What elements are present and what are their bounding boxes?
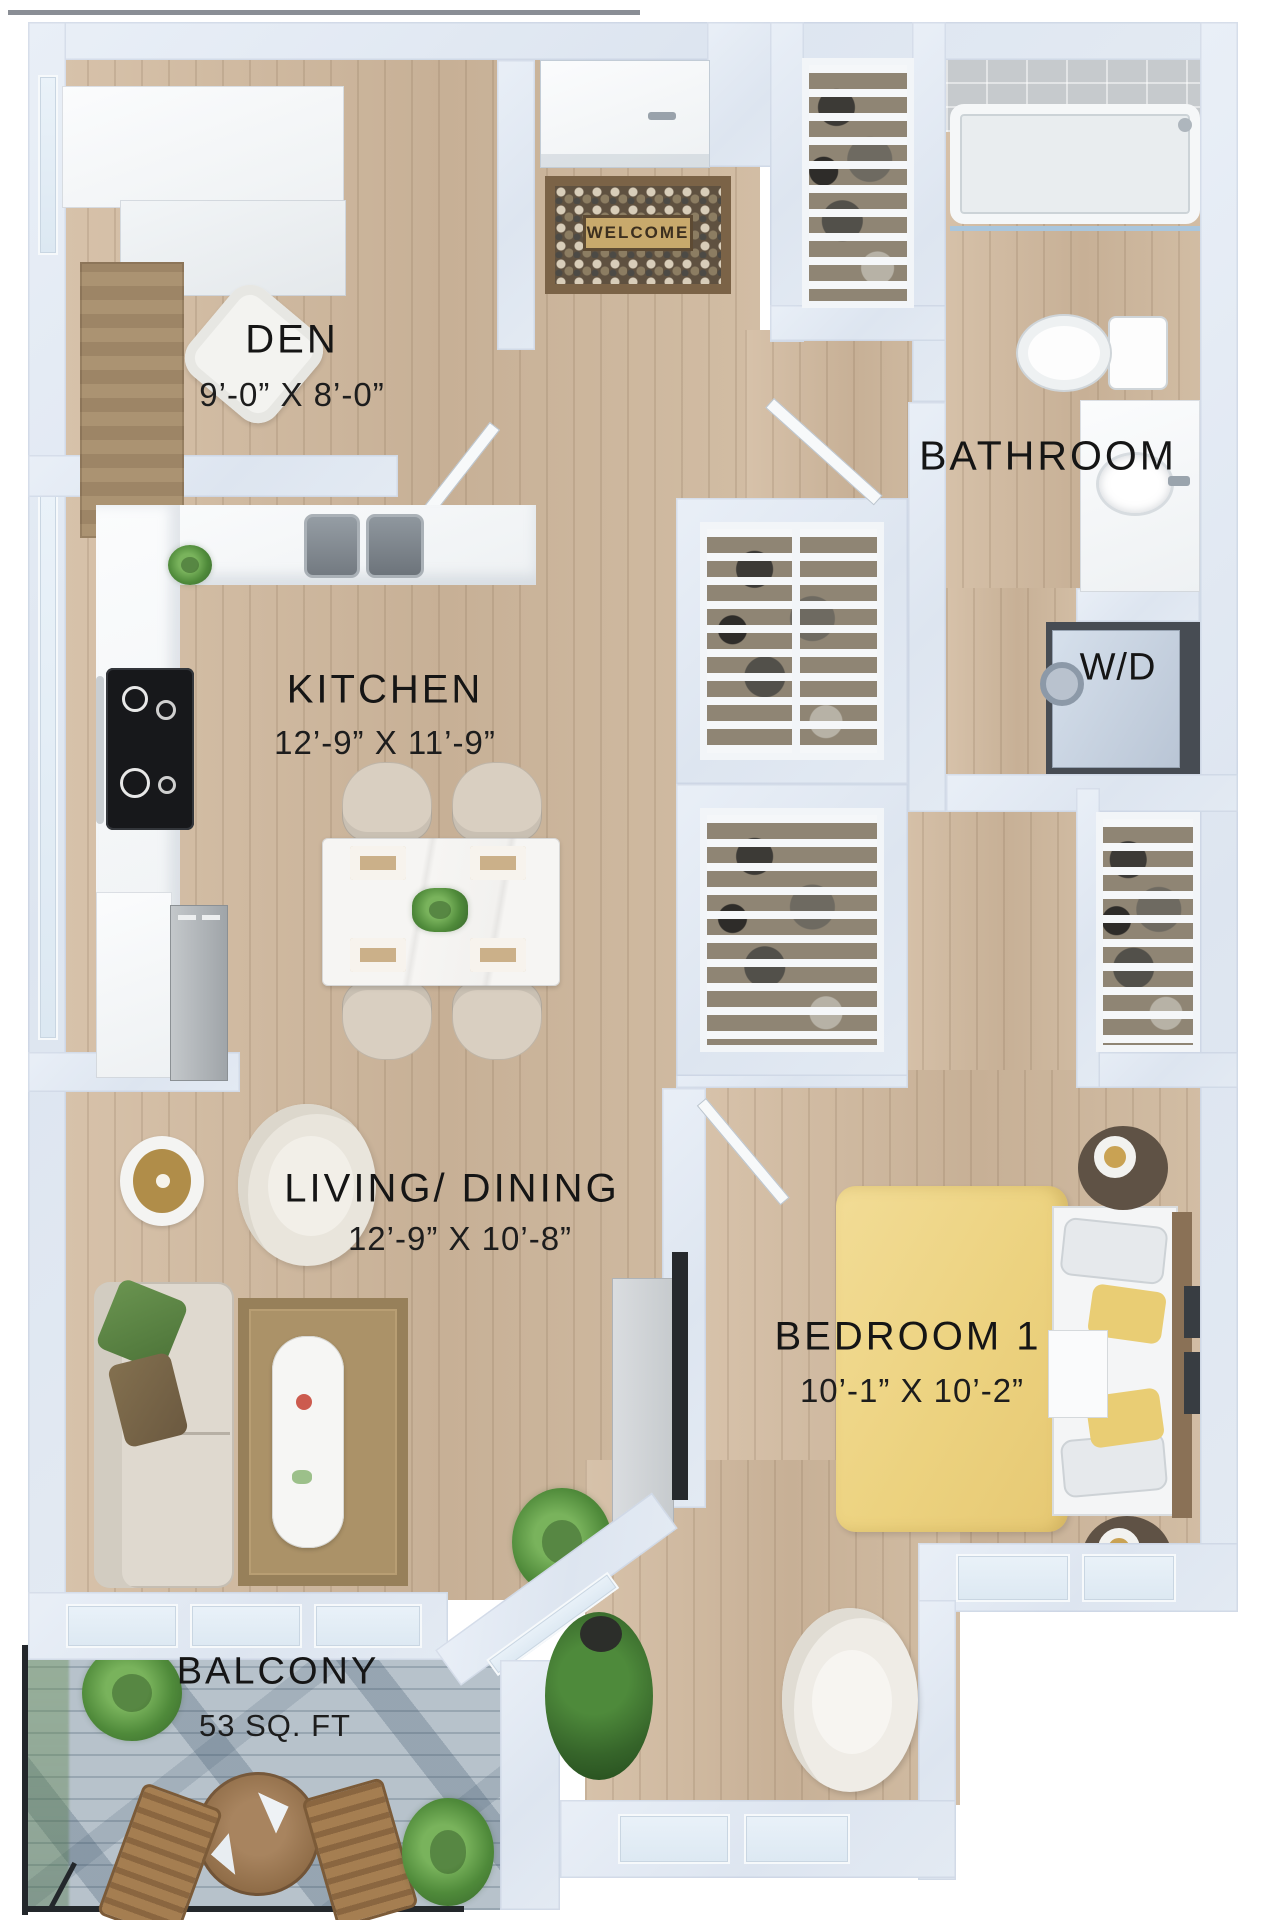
entry-closet [802, 58, 914, 308]
toilet-bowl [1016, 314, 1112, 392]
kitchen-dims: 12’-9” X 11’-9” [274, 724, 496, 762]
kitchen-lower-cabinet [96, 892, 172, 1078]
wall-art-frame [1184, 1286, 1200, 1338]
place-setting [350, 846, 406, 880]
tv-console [612, 1278, 674, 1532]
wall-under-vanity [1076, 588, 1200, 622]
dining-chair [342, 980, 432, 1060]
kitchen-sink [304, 514, 360, 578]
side-table-dot [156, 1174, 170, 1188]
bathtub [950, 104, 1200, 224]
nook-window [744, 1814, 850, 1864]
place-setting [350, 938, 406, 972]
upper-edge-line [8, 10, 640, 15]
closet-shelf-slats [1103, 819, 1193, 1045]
bedroom-dims: 10’-1” X 10’-2” [800, 1372, 1024, 1410]
den-dims: 9’-0” X 8’-0” [199, 376, 384, 414]
wd-label: W/D [1080, 647, 1157, 690]
bedroom-closet-right [1096, 812, 1200, 1052]
living-window [190, 1604, 302, 1648]
cooktop-burner [122, 686, 148, 712]
wall-entry-closet-bottom [770, 305, 946, 341]
wall-art-frame [1184, 1352, 1200, 1414]
fridge-handle [202, 915, 220, 920]
bedroom-window [956, 1554, 1070, 1602]
coffee-table-decor [296, 1394, 312, 1410]
cooktop-burner [156, 700, 176, 720]
fridge-handle [178, 915, 196, 920]
place-setting [470, 938, 526, 972]
den-sideboard [80, 262, 184, 538]
window-kitchen-left [38, 480, 58, 1040]
living-window [66, 1604, 178, 1648]
living-window [314, 1604, 422, 1648]
balcony-glass-panel [27, 1645, 69, 1908]
den-desk [62, 86, 344, 208]
living-label: LIVING/ DINING [284, 1167, 619, 1212]
floorplan-canvas: WELCOME DEN 9’-0” X 8’-0” KITCHEN 12’-9”… [0, 0, 1264, 1920]
bed-pillow [1059, 1217, 1168, 1286]
balcony-area: 53 SQ. FT [199, 1708, 351, 1744]
kitchen-sink [366, 514, 424, 578]
balcony-label: BALCONY [177, 1651, 380, 1694]
nook-window [618, 1814, 730, 1864]
wall-entry-closet-left [770, 22, 804, 342]
entry-door-handle [648, 112, 676, 120]
balcony-railing-left [22, 1645, 28, 1915]
cooktop [106, 668, 194, 830]
oven-handle [96, 676, 104, 824]
bedroom-window [1082, 1554, 1176, 1602]
cooktop-burner [158, 776, 176, 794]
table-centerpiece [412, 888, 468, 932]
tub-glass-screen [950, 226, 1200, 231]
washer-drum [1040, 662, 1084, 706]
dining-chair [452, 980, 542, 1060]
bedroom-closet-left [700, 808, 884, 1052]
wall-bathroom-left [912, 22, 946, 402]
hall-closet [700, 522, 884, 760]
living-dims: 12’-9” X 10’-8” [348, 1220, 572, 1258]
toilet-tank [1108, 316, 1168, 390]
coffee-table [272, 1336, 344, 1548]
fridge [170, 905, 228, 1081]
kitchen-label: KITCHEN [287, 668, 484, 713]
shower-head [1178, 118, 1192, 132]
cooktop-burner [120, 768, 150, 798]
wall-bedroom-top-right [1076, 1052, 1238, 1088]
closet-divider [792, 529, 800, 753]
bed-runner [1048, 1330, 1108, 1418]
bedroom-label: BEDROOM 1 [774, 1315, 1041, 1360]
floor-closet-corridor [895, 800, 1095, 1090]
wall-top [28, 22, 1238, 60]
window-den-left [38, 75, 58, 255]
kitchen-counter-plant [168, 545, 212, 585]
accent-chair-seat [812, 1650, 892, 1754]
place-setting [470, 846, 526, 880]
wall-right [1200, 22, 1238, 1612]
closet-shelf-slats [809, 65, 907, 301]
closet-shelf-slats [707, 815, 877, 1045]
nightstand-lamp [1094, 1136, 1136, 1178]
coffee-table-decor [292, 1470, 312, 1484]
bathroom-label: BATHROOM [919, 433, 1177, 480]
tv-screen [672, 1252, 688, 1500]
dining-chair [452, 762, 542, 842]
nook-plant-pot [580, 1616, 622, 1652]
entry-door [540, 60, 710, 168]
dining-chair [342, 762, 432, 842]
den-label: DEN [245, 318, 338, 363]
doormat-text: WELCOME [587, 223, 690, 243]
balcony-plant-right [402, 1798, 494, 1906]
wall-den-right [497, 60, 535, 350]
